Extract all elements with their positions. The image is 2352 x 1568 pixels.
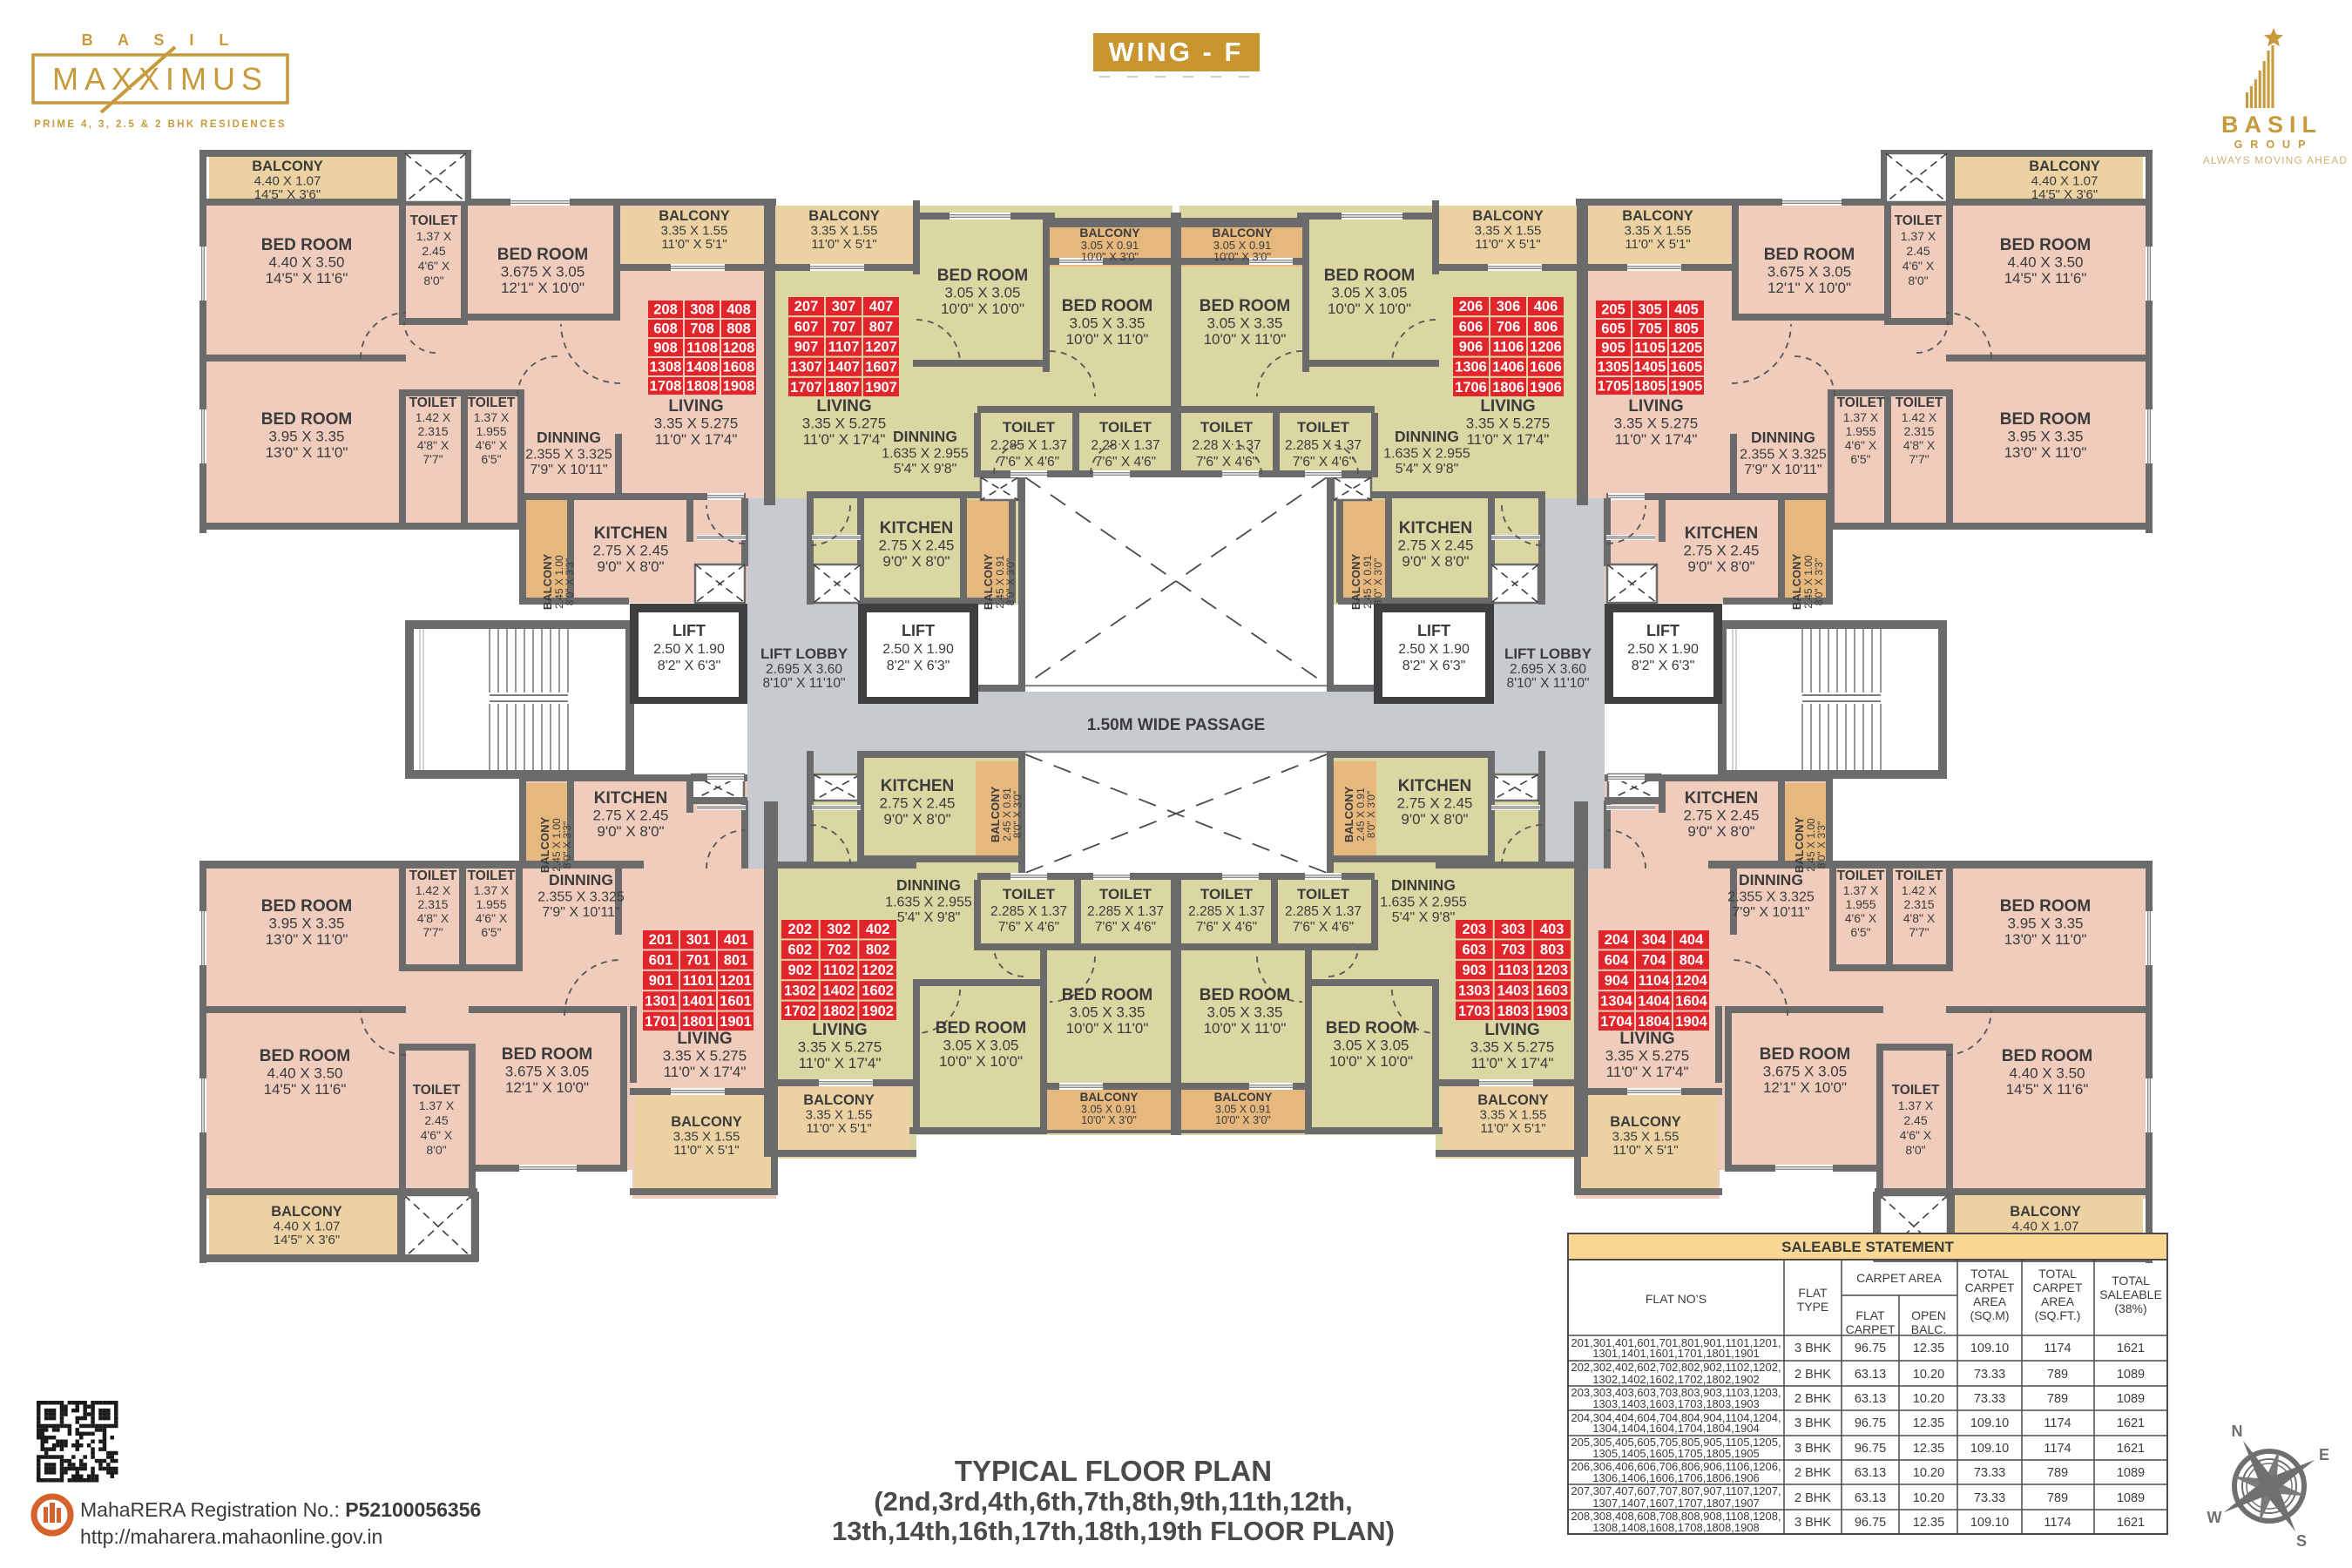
svg-text:KITCHEN: KITCHEN: [1685, 789, 1758, 808]
svg-text:706: 706: [1497, 319, 1521, 335]
svg-text:LIFT: LIFT: [1417, 622, 1450, 639]
svg-text:804: 804: [1680, 953, 1704, 969]
svg-text:TOILET: TOILET: [413, 1083, 461, 1098]
svg-text:1.955: 1.955: [476, 897, 506, 911]
svg-text:B A S I L: B A S I L: [82, 31, 240, 49]
svg-text:7'7": 7'7": [1909, 925, 1929, 939]
svg-text:13'0" X 11'0": 13'0" X 11'0": [2004, 931, 2087, 948]
svg-text:4.40 X 3.50: 4.40 X 3.50: [2008, 254, 2084, 271]
svg-text:1307: 1307: [790, 360, 822, 375]
svg-text:707: 707: [832, 319, 856, 335]
svg-text:BED ROOM: BED ROOM: [1324, 267, 1416, 285]
svg-text:4.40 X 1.07: 4.40 X 1.07: [254, 174, 321, 189]
svg-text:1303,1403,1603,1703,1803,1903: 1303,1403,1603,1703,1803,1903: [1592, 1397, 1760, 1410]
svg-text:1306,1406,1606,1706,1806,1906: 1306,1406,1606,1706,1806,1906: [1592, 1471, 1760, 1484]
svg-text:TOTAL: TOTAL: [1970, 1267, 2009, 1281]
svg-text:1089: 1089: [2117, 1392, 2145, 1406]
svg-text:10'0" X 11'0": 10'0" X 11'0": [1066, 1020, 1149, 1037]
svg-text:1705: 1705: [1598, 379, 1630, 395]
svg-text:1102: 1102: [823, 963, 855, 978]
svg-text:3.35 X 5.275: 3.35 X 5.275: [798, 1039, 882, 1056]
svg-text:11'0" X 17'4": 11'0" X 17'4": [1471, 1055, 1554, 1071]
svg-text:1301: 1301: [645, 993, 677, 1009]
svg-text:903: 903: [1463, 963, 1487, 978]
svg-text:3.35 X 1.55: 3.35 X 1.55: [661, 224, 728, 239]
svg-text:LIFT LOBBY: LIFT LOBBY: [1504, 645, 1592, 662]
svg-text:BALCONY: BALCONY: [1477, 1092, 1549, 1108]
svg-text:KITCHEN: KITCHEN: [1685, 524, 1758, 543]
svg-text:2.75 X 2.45: 2.75 X 2.45: [1398, 537, 1474, 554]
svg-text:1302: 1302: [784, 983, 816, 998]
svg-text:AREA: AREA: [2041, 1294, 2075, 1308]
svg-text:BALCONY: BALCONY: [982, 554, 995, 611]
svg-text:MahaRERA Registration No.: P52: MahaRERA Registration No.: P52100056356: [80, 1498, 481, 1521]
svg-text:1107: 1107: [828, 340, 860, 355]
svg-text:2.75 X 2.45: 2.75 X 2.45: [1684, 543, 1760, 559]
svg-text:BALCONY: BALCONY: [1793, 817, 1806, 874]
svg-text:2.75 X 2.45: 2.75 X 2.45: [880, 795, 956, 812]
svg-text:9'0" X 8'0": 9'0" X 8'0": [882, 553, 950, 570]
svg-text:4'6" X: 4'6" X: [1845, 911, 1877, 925]
svg-text:MAXXIMUS: MAXXIMUS: [52, 61, 268, 97]
svg-text:202: 202: [788, 922, 813, 937]
svg-text:3.95 X 3.35: 3.95 X 3.35: [2008, 916, 2084, 932]
svg-text:1.42 X: 1.42 X: [1902, 883, 1937, 897]
svg-text:TOILET: TOILET: [1200, 886, 1254, 902]
svg-text:7'6" X 4'6": 7'6" X 4'6": [1196, 920, 1257, 935]
svg-text:7'9" X 10'11": 7'9" X 10'11": [530, 463, 607, 477]
svg-text:1602: 1602: [862, 983, 894, 998]
svg-text:1089: 1089: [2117, 1466, 2145, 1480]
svg-text:http://maharera.mahaonline.gov: http://maharera.mahaonline.gov.in: [80, 1525, 382, 1548]
svg-text:6'5": 6'5": [1850, 452, 1870, 466]
svg-text:S: S: [2296, 1532, 2307, 1550]
svg-text:3.35 X 1.55: 3.35 X 1.55: [806, 1108, 873, 1123]
svg-text:14'5" X 11'6": 14'5" X 11'6": [266, 270, 348, 287]
svg-text:11'0" X 17'4": 11'0" X 17'4": [664, 1064, 747, 1080]
svg-text:LIVING: LIVING: [1480, 397, 1535, 416]
svg-text:2.285 X 1.37: 2.285 X 1.37: [990, 904, 1067, 919]
svg-text:DINNING: DINNING: [549, 871, 613, 889]
svg-text:1806: 1806: [1492, 380, 1524, 395]
svg-text:906: 906: [1459, 340, 1484, 355]
svg-text:1.635 X 2.955: 1.635 X 2.955: [885, 896, 972, 910]
svg-text:KITCHEN: KITCHEN: [594, 789, 667, 808]
svg-text:306: 306: [1497, 299, 1521, 314]
svg-text:BALCONY: BALCONY: [1622, 208, 1693, 224]
svg-text:BED ROOM: BED ROOM: [502, 1045, 593, 1064]
svg-text:1103: 1103: [1497, 963, 1529, 978]
svg-text:3.05 X 3.35: 3.05 X 3.35: [1207, 315, 1283, 332]
svg-text:1402: 1402: [823, 983, 855, 998]
svg-text:3.35 X 5.275: 3.35 X 5.275: [1614, 416, 1698, 432]
svg-text:10'0" X 3'0": 10'0" X 3'0": [1081, 250, 1139, 263]
svg-text:7'9" X 10'11": 7'9" X 10'11": [542, 905, 619, 920]
svg-text:1706: 1706: [1455, 380, 1487, 395]
svg-text:2.285 X 1.37: 2.285 X 1.37: [1285, 438, 1362, 453]
svg-text:207: 207: [794, 299, 819, 314]
svg-text:1205: 1205: [1671, 341, 1703, 356]
svg-text:1.635 X 2.955: 1.635 X 2.955: [1380, 896, 1467, 910]
svg-text:BASIL: BASIL: [2221, 112, 2322, 138]
svg-text:1406: 1406: [1492, 360, 1524, 375]
svg-text:1.37 X: 1.37 X: [416, 229, 452, 243]
svg-text:LIFT LOBBY: LIFT LOBBY: [760, 645, 848, 662]
svg-text:TOILET: TOILET: [409, 395, 457, 410]
svg-text:3 BHK: 3 BHK: [1794, 1516, 1831, 1530]
svg-text:BED ROOM: BED ROOM: [1062, 986, 1153, 1004]
svg-text:8'0" X 3'0": 8'0" X 3'0": [1365, 791, 1377, 838]
svg-text:4'8" X: 4'8" X: [417, 438, 449, 452]
svg-text:1307,1407,1607,1707,1807,1907: 1307,1407,1607,1707,1807,1907: [1592, 1497, 1760, 1510]
svg-text:1089: 1089: [2117, 1491, 2145, 1505]
svg-text:DINNING: DINNING: [1751, 429, 1815, 446]
svg-text:606: 606: [1459, 319, 1484, 335]
svg-text:BED ROOM: BED ROOM: [260, 1047, 351, 1065]
svg-text:1302,1402,1602,1702,1802,1902: 1302,1402,1602,1702,1802,1902: [1592, 1373, 1760, 1386]
svg-text:11'0" X 5'1": 11'0" X 5'1": [811, 237, 876, 252]
svg-text:11'0" X 17'4": 11'0" X 17'4": [655, 431, 738, 448]
svg-text:10'0" X 10'0": 10'0" X 10'0": [939, 1053, 1023, 1070]
svg-text:14'5" X 3'6": 14'5" X 3'6": [2031, 187, 2098, 202]
svg-text:BED ROOM: BED ROOM: [497, 246, 589, 264]
svg-text:2.50 X 1.90: 2.50 X 1.90: [653, 642, 725, 657]
svg-text:789: 789: [2047, 1392, 2068, 1406]
svg-text:12.35: 12.35: [1913, 1416, 1944, 1430]
svg-text:BALCONY: BALCONY: [1472, 208, 1544, 224]
svg-text:LIVING: LIVING: [816, 397, 871, 416]
svg-text:1707: 1707: [790, 380, 822, 395]
svg-text:DINNING: DINNING: [1395, 428, 1459, 445]
svg-text:2.50 X 1.90: 2.50 X 1.90: [1627, 642, 1699, 657]
svg-text:904: 904: [1605, 973, 1629, 989]
svg-text:7'9" X 10'11": 7'9" X 10'11": [1732, 905, 1809, 920]
svg-text:1308: 1308: [650, 360, 682, 375]
svg-text:3.35 X 5.275: 3.35 X 5.275: [1466, 416, 1550, 432]
svg-text:603: 603: [1463, 943, 1487, 958]
svg-text:109.10: 109.10: [1970, 1442, 2009, 1456]
svg-text:1204: 1204: [1675, 973, 1708, 989]
svg-text:3.95 X 3.35: 3.95 X 3.35: [269, 429, 345, 445]
svg-text:1403: 1403: [1497, 983, 1530, 998]
svg-text:1174: 1174: [2044, 1442, 2071, 1456]
svg-text:LIVING: LIVING: [677, 1030, 732, 1048]
svg-text:1108: 1108: [686, 341, 718, 356]
svg-text:3.95 X 3.35: 3.95 X 3.35: [269, 916, 345, 932]
svg-text:11'0" X 5'1": 11'0" X 5'1": [1480, 1121, 1545, 1136]
svg-text:1.50M WIDE PASSAGE: 1.50M WIDE PASSAGE: [1087, 716, 1265, 734]
svg-text:BED ROOM: BED ROOM: [2000, 236, 2092, 254]
svg-text:13'0" X 11'0": 13'0" X 11'0": [2004, 444, 2087, 461]
svg-text:TOILET: TOILET: [409, 868, 457, 883]
svg-text:789: 789: [2047, 1466, 2068, 1480]
svg-text:BED ROOM: BED ROOM: [2000, 897, 2092, 916]
svg-text:73.33: 73.33: [1974, 1368, 2005, 1382]
svg-text:11'0" X 5'1": 11'0" X 5'1": [1612, 1143, 1678, 1158]
svg-text:1804: 1804: [1638, 1014, 1671, 1030]
svg-text:1802: 1802: [823, 1004, 855, 1019]
svg-text:8'2" X 6'3": 8'2" X 6'3": [1402, 659, 1466, 673]
svg-text:2.355 X 3.325: 2.355 X 3.325: [537, 890, 625, 905]
svg-text:905: 905: [1601, 341, 1625, 356]
svg-text:7'6" X 4'6": 7'6" X 4'6": [1293, 920, 1354, 935]
svg-text:109.10: 109.10: [1970, 1342, 2009, 1355]
svg-text:9'0" X 8'0": 9'0" X 8'0": [883, 811, 950, 828]
svg-text:LIFT: LIFT: [672, 622, 706, 639]
svg-text:1.955: 1.955: [1845, 424, 1876, 438]
svg-text:1904: 1904: [1675, 1014, 1708, 1030]
svg-text:703: 703: [1501, 943, 1525, 958]
svg-text:N: N: [2232, 1423, 2243, 1440]
svg-text:1101: 1101: [683, 973, 714, 989]
svg-text:KITCHEN: KITCHEN: [880, 519, 953, 537]
svg-text:704: 704: [1642, 953, 1666, 969]
svg-text:BED ROOM: BED ROOM: [2000, 410, 2092, 429]
svg-text:BED ROOM: BED ROOM: [261, 410, 353, 429]
svg-text:BALCONY: BALCONY: [541, 554, 554, 611]
svg-text:9'0" X 8'0": 9'0" X 8'0": [1401, 811, 1468, 828]
svg-text:FLAT: FLAT: [1798, 1286, 1828, 1300]
svg-text:1703: 1703: [1458, 1004, 1490, 1019]
svg-text:9'0" X 8'0": 9'0" X 8'0": [1402, 553, 1469, 570]
svg-text:3.35 X 5.275: 3.35 X 5.275: [654, 416, 738, 432]
svg-text:TOILET: TOILET: [468, 395, 516, 410]
svg-text:TOILET: TOILET: [1896, 395, 1943, 410]
svg-text:604: 604: [1605, 953, 1629, 969]
svg-text:1908: 1908: [723, 379, 755, 395]
svg-text:11'0" X 5'1": 11'0" X 5'1": [1625, 237, 1690, 252]
svg-text:2.75 X 2.45: 2.75 X 2.45: [593, 808, 669, 824]
svg-text:DINNING: DINNING: [537, 429, 601, 446]
svg-text:1708: 1708: [650, 379, 682, 395]
svg-text:1.37 X: 1.37 X: [474, 883, 510, 897]
svg-text:302: 302: [827, 922, 851, 937]
svg-text:1903: 1903: [1536, 1004, 1568, 1019]
svg-text:1.37 X: 1.37 X: [1843, 883, 1879, 897]
svg-text:96.75: 96.75: [1855, 1342, 1886, 1355]
svg-text:2.695 X 3.60: 2.695 X 3.60: [1510, 662, 1586, 677]
svg-text:2.50 X 1.90: 2.50 X 1.90: [1398, 642, 1470, 657]
svg-text:63.13: 63.13: [1855, 1491, 1886, 1505]
svg-text:807: 807: [869, 319, 894, 335]
svg-text:4'8" X: 4'8" X: [1903, 438, 1936, 452]
svg-text:702: 702: [827, 943, 851, 958]
svg-text:TOILET: TOILET: [1200, 419, 1254, 436]
svg-text:1603: 1603: [1536, 983, 1568, 998]
svg-text:9'0" X 8'0": 9'0" X 8'0": [597, 823, 664, 840]
svg-text:3.35 X 1.55: 3.35 X 1.55: [1625, 224, 1692, 239]
svg-text:14'5" X 11'6": 14'5" X 11'6": [2006, 1081, 2089, 1098]
svg-text:3.35 X 1.55: 3.35 X 1.55: [673, 1130, 740, 1145]
svg-text:301: 301: [686, 932, 711, 948]
svg-text:3.35 X 1.55: 3.35 X 1.55: [811, 224, 878, 239]
svg-text:2.28 X 1.37: 2.28 X 1.37: [1192, 438, 1260, 453]
svg-text:1.42 X: 1.42 X: [1902, 410, 1937, 424]
svg-text:3.675 X 3.05: 3.675 X 3.05: [501, 264, 585, 280]
svg-text:TOTAL: TOTAL: [2112, 1274, 2150, 1288]
svg-text:5'4" X 9'8": 5'4" X 9'8": [1396, 462, 1459, 476]
svg-text:63.13: 63.13: [1855, 1466, 1886, 1480]
svg-text:3.675 X 3.05: 3.675 X 3.05: [1767, 264, 1851, 280]
svg-text:3.675 X 3.05: 3.675 X 3.05: [1763, 1064, 1847, 1080]
svg-text:1608: 1608: [723, 360, 755, 375]
svg-text:1805: 1805: [1634, 379, 1666, 395]
svg-text:2.45: 2.45: [424, 1113, 448, 1127]
svg-text:BALCONY: BALCONY: [671, 1114, 742, 1130]
svg-text:1206: 1206: [1530, 340, 1562, 355]
svg-text:5'4" X 9'8": 5'4" X 9'8": [894, 462, 957, 476]
svg-text:LIVING: LIVING: [1628, 397, 1683, 416]
svg-text:73.33: 73.33: [1974, 1491, 2005, 1505]
svg-text:11'0" X 5'1": 11'0" X 5'1": [661, 237, 727, 252]
svg-text:907: 907: [794, 340, 819, 355]
svg-text:LIVING: LIVING: [1619, 1030, 1674, 1048]
svg-text:SALEABLE STATEMENT: SALEABLE STATEMENT: [1781, 1239, 1954, 1255]
svg-text:8'10" X 11'10": 8'10" X 11'10": [1506, 676, 1589, 691]
svg-text:1621: 1621: [2117, 1342, 2145, 1355]
svg-text:708: 708: [690, 321, 714, 337]
svg-text:LIFT: LIFT: [1646, 622, 1680, 639]
svg-text:2.285 X 1.37: 2.285 X 1.37: [1285, 904, 1362, 919]
svg-text:8'2" X 6'3": 8'2" X 6'3": [1632, 659, 1695, 673]
svg-text:6'5": 6'5": [481, 925, 501, 939]
svg-text:11'0" X 17'4": 11'0" X 17'4": [1467, 431, 1550, 448]
svg-text:FLAT: FLAT: [1855, 1308, 1885, 1322]
svg-text:607: 607: [794, 319, 819, 335]
svg-text:207,307,407,607,707,807,907,11: 207,307,407,607,707,807,907,1107,1207,: [1571, 1484, 1781, 1497]
svg-text:(SQ.M): (SQ.M): [1970, 1308, 2009, 1322]
svg-text:10'0" X 10'0": 10'0" X 10'0": [1328, 301, 1411, 317]
svg-text:BALCONY: BALCONY: [1342, 787, 1355, 843]
svg-text:1.37 X: 1.37 X: [1843, 410, 1879, 424]
svg-text:205: 205: [1601, 302, 1625, 318]
svg-text:TOILET: TOILET: [1297, 419, 1350, 436]
svg-text:8'0" X 3'3": 8'0" X 3'3": [561, 821, 573, 868]
svg-text:109.10: 109.10: [1970, 1416, 2009, 1430]
svg-text:1605: 1605: [1671, 360, 1703, 375]
svg-text:KITCHEN: KITCHEN: [1398, 777, 1471, 795]
svg-text:TYPE: TYPE: [1797, 1300, 1829, 1314]
svg-text:BALCONY: BALCONY: [659, 208, 730, 224]
svg-text:BALCONY: BALCONY: [803, 1092, 875, 1108]
svg-text:201: 201: [649, 932, 673, 948]
svg-text:1305,1405,1605,1705,1805,1905: 1305,1405,1605,1705,1805,1905: [1592, 1447, 1760, 1460]
svg-text:7'9" X 10'11": 7'9" X 10'11": [1744, 463, 1821, 477]
svg-text:12'1" X 10'0": 12'1" X 10'0": [1767, 280, 1851, 296]
svg-text:605: 605: [1601, 321, 1625, 337]
svg-text:TOILET: TOILET: [1099, 419, 1152, 436]
svg-text:1902: 1902: [862, 1004, 894, 1019]
svg-text:206: 206: [1459, 299, 1484, 314]
svg-text:3.675 X 3.05: 3.675 X 3.05: [505, 1064, 589, 1080]
svg-text:3.35 X 1.55: 3.35 X 1.55: [1475, 224, 1542, 239]
svg-text:TOILET: TOILET: [1003, 886, 1056, 902]
svg-text:2.45: 2.45: [422, 244, 445, 258]
svg-text:1404: 1404: [1638, 993, 1671, 1009]
svg-text:73.33: 73.33: [1974, 1466, 2005, 1480]
svg-text:407: 407: [869, 299, 894, 314]
svg-text:1174: 1174: [2044, 1416, 2071, 1430]
svg-text:4'6" X: 4'6" X: [476, 911, 508, 925]
svg-text:8'2" X 6'3": 8'2" X 6'3": [887, 659, 950, 673]
svg-text:10.20: 10.20: [1913, 1491, 1944, 1505]
svg-text:TOILET: TOILET: [1837, 868, 1885, 883]
svg-text:2.45: 2.45: [1906, 244, 1930, 258]
svg-text:BALCONY: BALCONY: [1610, 1114, 1681, 1130]
svg-text:303: 303: [1501, 922, 1525, 937]
svg-text:W: W: [2207, 1509, 2222, 1526]
svg-text:10'0" X 11'0": 10'0" X 11'0": [1204, 1020, 1287, 1037]
svg-text:4.40 X 3.50: 4.40 X 3.50: [267, 1065, 343, 1082]
svg-text:2.75 X 2.45: 2.75 X 2.45: [879, 537, 955, 554]
svg-text:KITCHEN: KITCHEN: [1399, 519, 1472, 537]
svg-text:BALCONY: BALCONY: [271, 1204, 342, 1220]
svg-text:14'5" X 11'6": 14'5" X 11'6": [264, 1081, 347, 1098]
svg-text:11'0" X 5'1": 11'0" X 5'1": [1475, 237, 1540, 252]
svg-text:LIVING: LIVING: [1484, 1021, 1539, 1039]
svg-text:10.20: 10.20: [1913, 1392, 1944, 1406]
svg-text:BALCONY: BALCONY: [252, 159, 323, 174]
svg-text:1408: 1408: [686, 360, 719, 375]
svg-text:GROUP: GROUP: [2234, 139, 2314, 151]
svg-text:2.50 X 1.90: 2.50 X 1.90: [882, 642, 954, 657]
svg-text:1305: 1305: [1598, 360, 1630, 375]
svg-text:3.05 X 3.35: 3.05 X 3.35: [1207, 1004, 1283, 1021]
svg-text:4.40 X 1.07: 4.40 X 1.07: [2012, 1220, 2079, 1234]
svg-text:8'0" X 3'0": 8'0" X 3'0": [1004, 558, 1017, 605]
svg-text:(38%): (38%): [2114, 1301, 2146, 1315]
svg-text:(2nd,3rd,4th,6th,7th,8th,9th,1: (2nd,3rd,4th,6th,7th,8th,9th,11th,12th,: [874, 1486, 1352, 1517]
svg-text:1.42 X: 1.42 X: [416, 883, 451, 897]
svg-text:2.355 X 3.325: 2.355 X 3.325: [525, 448, 612, 463]
svg-text:2 BHK: 2 BHK: [1794, 1368, 1831, 1382]
svg-text:63.13: 63.13: [1855, 1368, 1886, 1382]
svg-text:4.40 X 3.50: 4.40 X 3.50: [269, 254, 345, 271]
svg-text:12'1" X 10'0": 12'1" X 10'0": [501, 280, 585, 296]
svg-text:8'0": 8'0": [426, 1143, 446, 1157]
svg-text:2.75 X 2.45: 2.75 X 2.45: [1397, 795, 1473, 812]
svg-text:TOILET: TOILET: [1892, 1083, 1940, 1098]
svg-text:10'0" X 10'0": 10'0" X 10'0": [941, 301, 1024, 317]
svg-text:PRIME 4, 3, 2.5 & 2 BHK RESIDE: PRIME 4, 3, 2.5 & 2 BHK RESIDENCES: [34, 119, 287, 130]
svg-text:403: 403: [1540, 922, 1565, 937]
svg-text:1704: 1704: [1600, 1014, 1633, 1030]
svg-text:CARPET AREA: CARPET AREA: [1856, 1271, 1942, 1285]
svg-text:4'6" X: 4'6" X: [1900, 1128, 1932, 1142]
svg-text:8'0": 8'0": [1905, 1143, 1925, 1157]
svg-text:8'10" X 11'10": 8'10" X 11'10": [762, 676, 845, 691]
svg-text:1621: 1621: [2117, 1416, 2145, 1430]
svg-text:3.35 X 5.275: 3.35 X 5.275: [1605, 1048, 1689, 1064]
svg-text:12.35: 12.35: [1913, 1342, 1944, 1355]
svg-text:2.75 X 2.45: 2.75 X 2.45: [1684, 808, 1760, 824]
svg-text:8'0": 8'0": [1908, 274, 1928, 287]
svg-text:4'6" X: 4'6" X: [1903, 259, 1935, 273]
svg-text:308: 308: [690, 302, 714, 318]
svg-text:BED ROOM: BED ROOM: [1760, 1045, 1851, 1064]
svg-text:4.40 X 1.07: 4.40 X 1.07: [274, 1220, 341, 1234]
svg-text:9'0" X 8'0": 9'0" X 8'0": [1687, 558, 1754, 575]
svg-text:1.955: 1.955: [476, 424, 506, 438]
svg-text:TOILET: TOILET: [1297, 886, 1350, 902]
svg-text:3.05 X 3.05: 3.05 X 3.05: [945, 285, 1021, 301]
svg-text:307: 307: [832, 299, 856, 314]
svg-text:1801: 1801: [682, 1014, 714, 1030]
svg-text:1203: 1203: [1536, 963, 1568, 978]
svg-text:2 BHK: 2 BHK: [1794, 1392, 1831, 1406]
svg-text:2.28 X 1.37: 2.28 X 1.37: [1091, 438, 1159, 453]
svg-text:BALCONY: BALCONY: [1214, 1091, 1273, 1104]
